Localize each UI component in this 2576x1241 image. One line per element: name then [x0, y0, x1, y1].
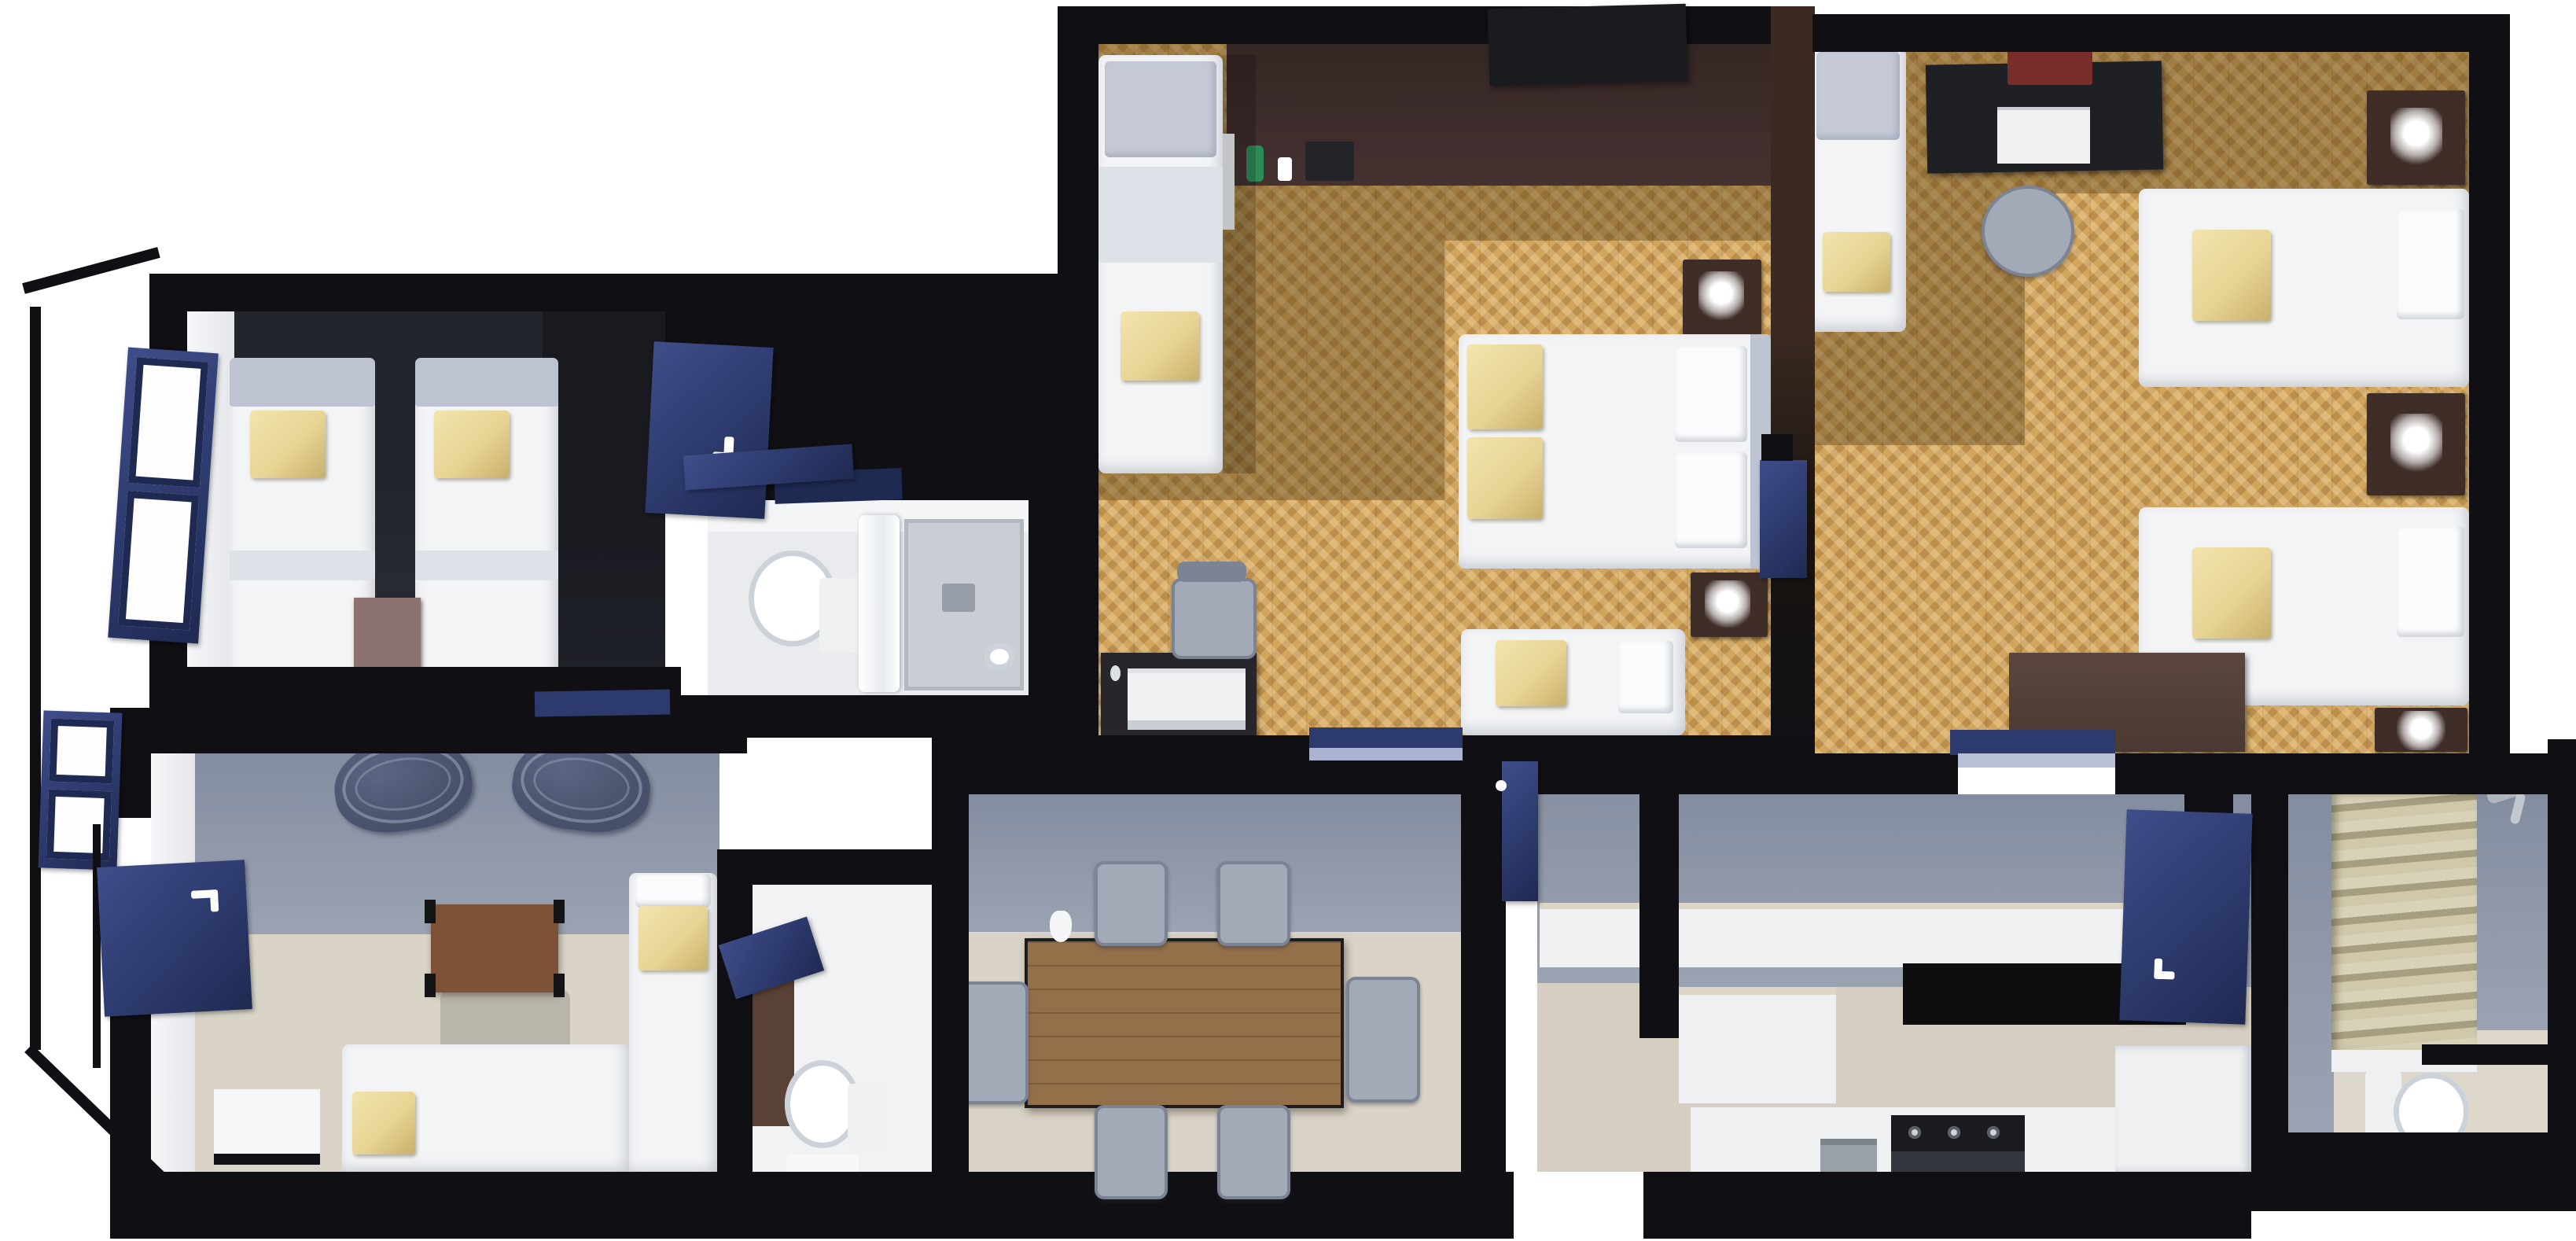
kitchen-door	[2119, 809, 2252, 1024]
bed-shadow	[1223, 55, 1256, 473]
window-pane	[49, 719, 114, 784]
hallway-door	[1502, 761, 1538, 901]
lamp-glow	[2390, 108, 2442, 164]
pillow-white	[2397, 209, 2464, 319]
closet-door	[645, 341, 773, 519]
kitchen-long-counter	[1540, 903, 2184, 967]
mouse	[1110, 665, 1121, 681]
desk-chair	[1982, 186, 2074, 277]
pillow-white	[1675, 452, 1747, 548]
jug	[1050, 911, 1072, 942]
desk-chair-back	[1177, 562, 1246, 582]
entry-door	[97, 860, 252, 1017]
door-threshold	[1309, 748, 1463, 760]
divider-door	[1760, 460, 1807, 578]
door-handle	[1496, 780, 1507, 791]
window-pane	[128, 357, 208, 488]
coffee-table	[431, 904, 558, 992]
table-leg	[554, 900, 565, 923]
shower-head-icon	[984, 643, 1014, 670]
wall	[1058, 6, 1098, 746]
pillow	[1467, 344, 1543, 429]
bed-blanket	[1098, 167, 1223, 263]
cup	[1278, 157, 1292, 181]
pillow-white	[2397, 527, 2464, 637]
pillow-gray	[1816, 52, 1900, 140]
pillow-white	[1675, 346, 1747, 442]
exterior-wall-bottom	[2251, 1132, 2576, 1211]
room-dining-wall	[967, 794, 1461, 932]
entrance-opening	[1514, 1172, 1643, 1239]
table-leg	[425, 900, 436, 923]
pillow	[2192, 230, 2271, 321]
bed-blanket	[230, 551, 375, 580]
pillow-white	[1618, 641, 1673, 713]
pillow-gray	[1105, 61, 1216, 157]
laptop	[1997, 107, 2090, 164]
lamp-glow	[2397, 711, 2445, 750]
dining-table	[1025, 938, 1344, 1108]
door-hinge	[1761, 434, 1793, 461]
wall	[149, 274, 1065, 311]
living-door-bar	[535, 690, 671, 717]
fridge-cabinet	[2115, 1046, 2251, 1172]
pillow	[1467, 437, 1543, 519]
exterior-wall-bottom	[110, 1172, 763, 1239]
tray-box	[1305, 142, 1354, 181]
printer	[1128, 668, 1246, 730]
wall	[2469, 14, 2510, 794]
shower-curtain	[2331, 794, 2477, 1054]
door-post	[93, 824, 101, 1068]
bedroom-door-bar	[1950, 730, 2115, 755]
wall	[1639, 759, 1679, 1038]
exterior-wall-edge	[22, 247, 160, 294]
pillow	[2192, 547, 2271, 639]
window-pane	[46, 790, 112, 861]
tv	[1488, 4, 1687, 87]
nightstand-lamp	[2375, 708, 2467, 752]
ensuite-wall-right	[2477, 794, 2548, 1030]
wall	[1461, 750, 1506, 1172]
nightstand-lamp	[1691, 573, 1768, 637]
door-handle	[210, 889, 219, 911]
nightstand	[354, 598, 421, 675]
pillow	[250, 411, 326, 478]
lamp-glow	[1698, 271, 1744, 320]
pillow	[1823, 232, 1890, 292]
pillow	[352, 1092, 415, 1154]
dining-chair	[1095, 861, 1168, 946]
pillow	[1496, 640, 1566, 706]
lamp-glow	[1705, 580, 1750, 628]
window-pane	[118, 491, 199, 631]
pillow	[1121, 311, 1199, 381]
island-cabinet	[1679, 987, 1836, 1103]
stove-burner	[1987, 1126, 2000, 1139]
pillow	[638, 906, 708, 970]
table-leg	[425, 974, 436, 997]
stove-burner	[1908, 1126, 1921, 1139]
bedroom-divider-wall	[1771, 6, 1815, 753]
floor-plan: 3D apartment floor plan — top-down cutaw…	[0, 0, 2576, 1241]
nightstand-lamp	[1683, 260, 1761, 335]
toilet-tank	[848, 1084, 889, 1150]
nightstand-lamp	[2367, 393, 2465, 495]
door-handle	[2154, 971, 2174, 980]
shower-drain	[942, 584, 975, 612]
desk-chair	[1172, 578, 1257, 659]
wall	[717, 849, 932, 885]
bench	[214, 1089, 320, 1154]
bed-blanket	[415, 551, 558, 580]
bedroom-door-bar	[1309, 727, 1463, 749]
exterior-wall-bottom	[763, 1172, 2251, 1239]
dining-chair	[1346, 977, 1420, 1103]
window	[39, 710, 123, 870]
nightstand-lamp	[2367, 90, 2465, 185]
table-shadow	[440, 989, 570, 1052]
wall	[2251, 779, 2288, 1172]
shower-curtain	[859, 515, 900, 692]
lamp-glow	[2390, 414, 2442, 472]
dining-chair	[1217, 1105, 1290, 1199]
dining-chair	[1095, 1105, 1168, 1199]
bed	[415, 358, 558, 692]
pillow-white	[635, 875, 711, 908]
table-leg	[554, 974, 565, 997]
pillow	[434, 411, 510, 478]
stove-burner	[1948, 1126, 1960, 1139]
wall	[1058, 6, 1814, 44]
ensuite-wall-left	[2288, 794, 2334, 1132]
shower-step	[2422, 1044, 2548, 1065]
bed-headboard	[415, 358, 558, 407]
dining-chair	[1217, 861, 1290, 946]
wall	[1812, 14, 2471, 52]
bed-headboard	[230, 358, 375, 407]
wall	[1812, 753, 2549, 794]
exterior-wall-edge	[30, 307, 41, 1050]
door-threshold	[1958, 753, 2115, 768]
